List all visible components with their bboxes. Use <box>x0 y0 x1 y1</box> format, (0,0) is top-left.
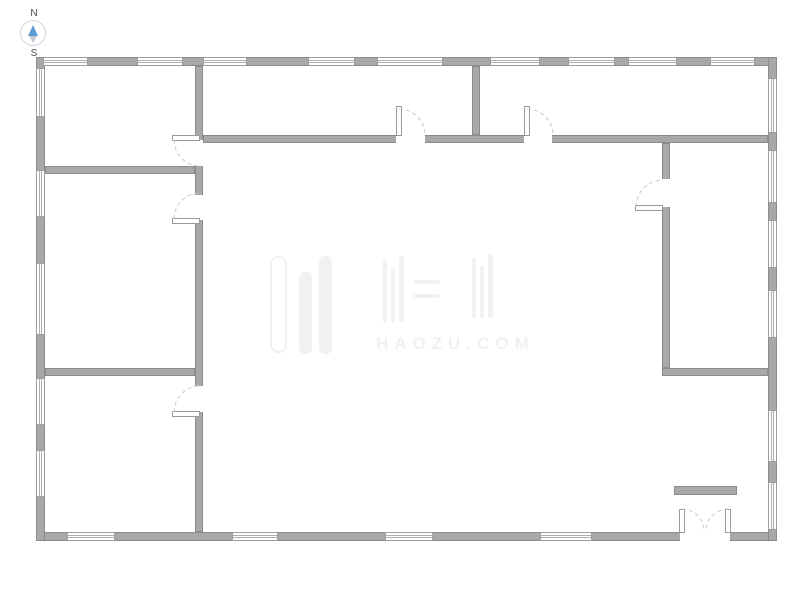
window-top-9 <box>710 57 755 66</box>
door-leaf-room2 <box>172 218 200 224</box>
watermark-glyph-icon <box>399 256 404 322</box>
door-swing-topright-room <box>527 109 553 135</box>
window-left-3 <box>36 263 45 335</box>
door-leaf-room3 <box>172 411 200 417</box>
window-left-2 <box>36 170 45 217</box>
watermark-glyph-icon <box>414 280 440 284</box>
compass: N S <box>14 4 58 64</box>
door-leaf-room1 <box>172 135 200 141</box>
window-right-2 <box>768 150 777 203</box>
window-top-2 <box>137 57 183 66</box>
door-opening-corridor <box>396 135 425 143</box>
window-top-8 <box>628 57 677 66</box>
window-left-1 <box>36 68 45 117</box>
wall-interior-h1 <box>45 166 195 174</box>
watermark-glyph-icon <box>414 294 440 298</box>
floor-plan-canvas: N S HAOZU.COM <box>0 0 800 600</box>
window-right-5 <box>768 410 777 462</box>
watermark-text: HAOZU.COM <box>376 334 535 354</box>
watermark: HAOZU.COM <box>262 246 542 368</box>
window-left-4 <box>36 378 45 425</box>
watermark-glyph-icon <box>383 260 387 322</box>
compass-south-needle-icon <box>29 36 37 43</box>
window-top-6 <box>490 57 540 66</box>
watermark-logo-icon <box>270 256 287 353</box>
window-bottom-2 <box>232 532 278 541</box>
door-opening-room3 <box>195 386 203 412</box>
door-opening-topright-room <box>524 135 552 143</box>
door-swing-entrance-left <box>682 509 704 531</box>
door-leaf-right-room <box>635 205 663 211</box>
door-swing-corridor <box>399 109 425 135</box>
window-top-1 <box>43 57 88 66</box>
wall-interior-h2 <box>45 368 195 376</box>
compass-north-needle-icon <box>28 25 38 36</box>
door-leaf-entrance-left <box>679 509 685 533</box>
window-right-4 <box>768 290 777 338</box>
door-opening-right-room <box>662 179 670 207</box>
window-right-1 <box>768 78 777 133</box>
door-swing-right-room <box>636 180 663 207</box>
compass-north-label: N <box>19 8 49 19</box>
window-top-5 <box>377 57 443 66</box>
wall-interior-h4 <box>662 368 768 376</box>
watermark-logo-icon <box>319 256 332 354</box>
wall-interior-h3 <box>203 135 768 143</box>
wall-interior-v3 <box>662 143 670 368</box>
counter-partition <box>674 486 737 495</box>
door-leaf-entrance-right <box>725 509 731 533</box>
wall-interior-v2 <box>472 66 480 135</box>
door-opening-room1 <box>195 140 203 166</box>
door-opening-entrance <box>680 532 730 541</box>
watermark-glyph-icon <box>472 258 476 318</box>
door-leaf-corridor <box>396 106 402 136</box>
compass-dial <box>20 20 46 46</box>
door-leaf-topright-room <box>524 106 530 136</box>
window-right-3 <box>768 220 777 268</box>
watermark-glyph-icon <box>488 254 493 318</box>
window-bottom-4 <box>540 532 592 541</box>
window-right-6 <box>768 482 777 530</box>
window-top-3 <box>203 57 247 66</box>
window-top-4 <box>308 57 355 66</box>
door-opening-room2 <box>195 195 203 220</box>
watermark-glyph-icon <box>480 266 484 318</box>
watermark-glyph-icon <box>391 268 395 322</box>
watermark-logo-icon <box>299 272 312 354</box>
window-top-7 <box>568 57 615 66</box>
window-bottom-3 <box>385 532 433 541</box>
window-left-5 <box>36 450 45 497</box>
window-bottom-1 <box>67 532 115 541</box>
